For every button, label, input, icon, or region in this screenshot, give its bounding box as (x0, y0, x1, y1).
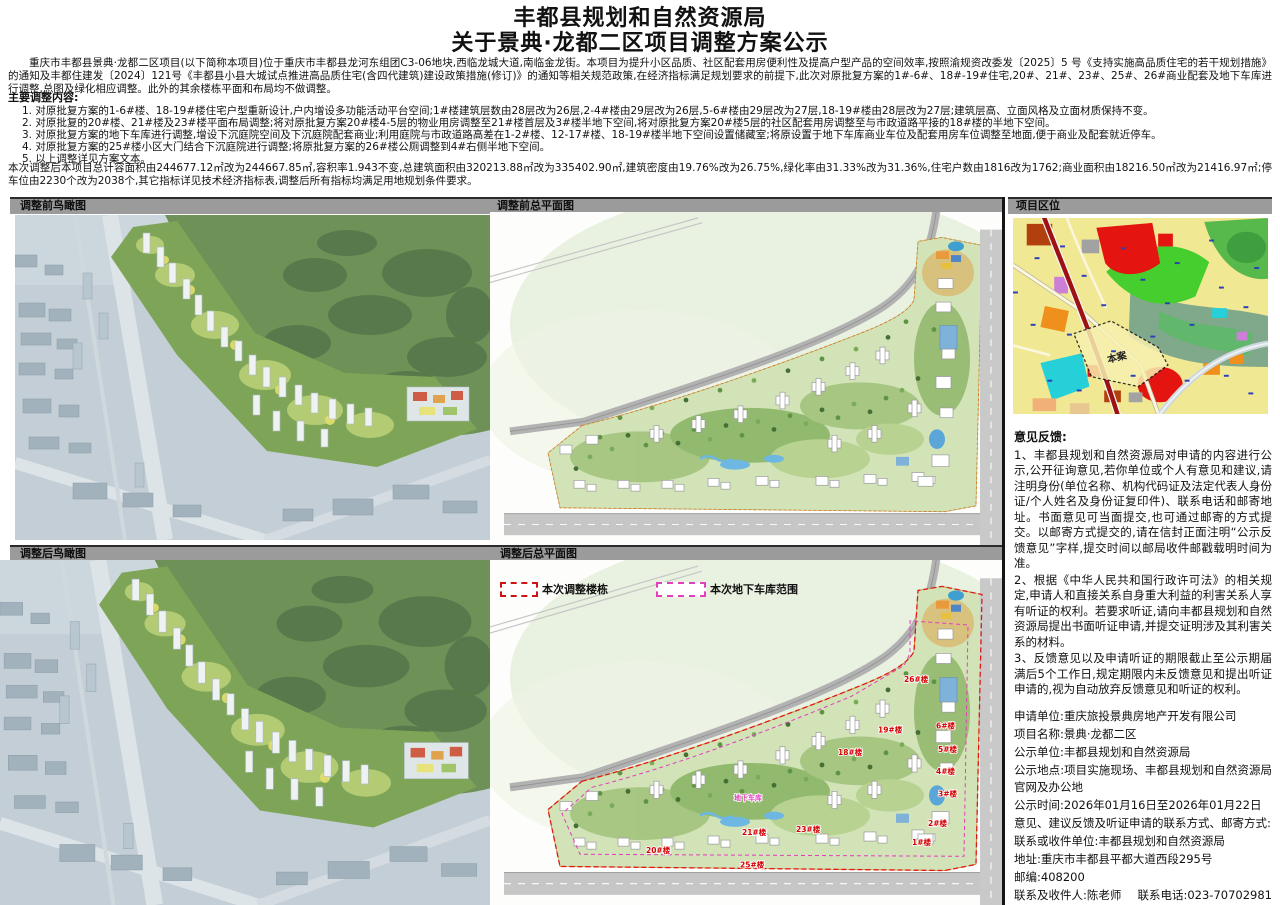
section-label-aerial-before: 调整前鸟瞰图 (20, 199, 86, 213)
adjusted-building-legend-swatch (500, 582, 538, 597)
title-line-1: 丰都县规划和自然资源局 (0, 6, 1280, 31)
adjustment-item: 4. 对原批复方案的25#楼小区大门结合下沉庭院进行调整;将原批复方案的26#楼… (8, 141, 1272, 153)
feedback-paragraph: 1、丰都县规划和自然资源局对申请的内容进行公示,公开征询意见,若你单位或个人有意… (1014, 448, 1272, 572)
info-line: 地址:重庆市丰都县平都大道西段295号 (1014, 851, 1272, 868)
column-divider (1002, 197, 1005, 905)
section-label-plan-after: 调整后总平面图 (500, 547, 577, 561)
building-label: 1#楼 (912, 837, 931, 847)
building-label: 21#楼 (742, 827, 767, 837)
aerial-before-image (15, 215, 490, 540)
summary-paragraph: 本次调整后本项目总计容面积由244677.12㎡改为244667.85㎡,容积率… (8, 162, 1272, 188)
publicity-info: 申请单位:重庆旅投景典房地产开发有限公司 项目名称:景典·龙都二区 公示单位:丰… (1014, 708, 1272, 905)
feedback-paragraph: 3、反馈意见以及申请听证的期限截止至公示期届满后5个工作日,规定期限内未反馈意见… (1014, 651, 1272, 698)
adjustments-heading: 主要调整内容: (8, 91, 1272, 105)
adjustment-item: 2. 对原批复的20#楼、21#楼及23#楼平面布局调整;将对原批复方案20#楼… (8, 117, 1272, 129)
info-line: 邮编:408200 (1014, 869, 1272, 886)
building-label: 23#楼 (796, 824, 821, 834)
building-label: 4#楼 (936, 766, 955, 776)
adjustment-item: 1. 对原批复方案的1-6#楼、18-19#楼住宅户型重新设计,户内增设多功能活… (8, 105, 1272, 117)
building-label: 2#楼 (928, 818, 947, 828)
page-title: 丰都县规划和自然资源局 关于景典·龙都二区项目调整方案公示 (0, 6, 1280, 56)
info-line: 联系或收件单位:丰都县规划和自然资源局 (1014, 833, 1272, 850)
title-line-2: 关于景典·龙都二区项目调整方案公示 (0, 31, 1280, 56)
info-line: 申请单位:重庆旅投景典房地产开发有限公司 (1014, 708, 1272, 725)
info-line: 公示单位:丰都县规划和自然资源局 (1014, 744, 1272, 761)
adjustments-section: 主要调整内容: 1. 对原批复方案的1-6#楼、18-19#楼住宅户型重新设计,… (8, 91, 1272, 165)
section-label-aerial-after: 调整后鸟瞰图 (20, 547, 86, 561)
contact-row: 联系及收件人:陈老师 联系电话:023-70702981 (1014, 887, 1272, 904)
info-line: 意见、建议反馈及听证申请的联系方式、邮寄方式: (1014, 815, 1272, 832)
garage-extent-legend-swatch (656, 582, 706, 597)
contact-name: 联系及收件人:陈老师 (1014, 887, 1121, 904)
building-label: 26#楼 (904, 674, 929, 684)
contact-phone: 联系电话:023-70702981 (1137, 887, 1272, 904)
building-label: 18#楼 (838, 747, 863, 757)
adjustment-item: 3. 对原批复方案的地下车库进行调整,增设下沉庭院空间及下沉庭院配套商业;利用庭… (8, 129, 1272, 141)
feedback-heading: 意见反馈: (1014, 430, 1272, 446)
garage-label: 地下车库 (734, 793, 762, 802)
building-label: 20#楼 (646, 845, 671, 855)
building-label: 3#楼 (938, 788, 957, 798)
announcement-page: 丰都县规划和自然资源局 关于景典·龙都二区项目调整方案公示 重庆市丰都县景典·龙… (0, 0, 1280, 905)
building-label: 25#楼 (740, 859, 765, 869)
adjusted-building-legend-label: 本次调整楼栋 (542, 581, 608, 597)
feedback-paragraph: 2、根据《中华人民共和国行政许可法》的相关规定,申请人和直接关系自身重大利益的利… (1014, 573, 1272, 651)
building-label: 6#楼 (936, 720, 955, 730)
section-label-location: 项目区位 (1016, 199, 1060, 213)
building-label: 19#楼 (878, 724, 903, 734)
section-label-plan-before: 调整前总平面图 (497, 199, 574, 213)
info-line: 公示时间:2026年01月16日至2026年01月22日 (1014, 797, 1272, 814)
legend-item-adjusted: 本次调整楼栋 (500, 581, 608, 597)
building-label: 5#楼 (938, 744, 957, 754)
feedback-section: 意见反馈: 1、丰都县规划和自然资源局对申请的内容进行公示,公开征询意见,若你单… (1014, 430, 1272, 905)
info-line: 公示地点:项目实施现场、丰都县规划和自然资源局官网及办公地 (1014, 762, 1272, 796)
location-map-image: 本案 (1013, 218, 1268, 414)
aerial-after-image (0, 560, 490, 905)
legend-item-garage: 本次地下车库范围 (656, 581, 798, 597)
info-line: 项目名称:景典·龙都二区 (1014, 726, 1272, 743)
plan-before-image (490, 212, 1002, 545)
location-section-bar: 项目区位 (1008, 197, 1272, 214)
garage-extent-legend-label: 本次地下车库范围 (710, 581, 798, 597)
plan-after-legend: 本次调整楼栋 本次地下车库范围 (500, 581, 798, 597)
plan-after-image: 26#楼 19#楼 18#楼 6#楼 5#楼 4#楼 3#楼 2#楼 1#楼 2… (490, 560, 1002, 905)
